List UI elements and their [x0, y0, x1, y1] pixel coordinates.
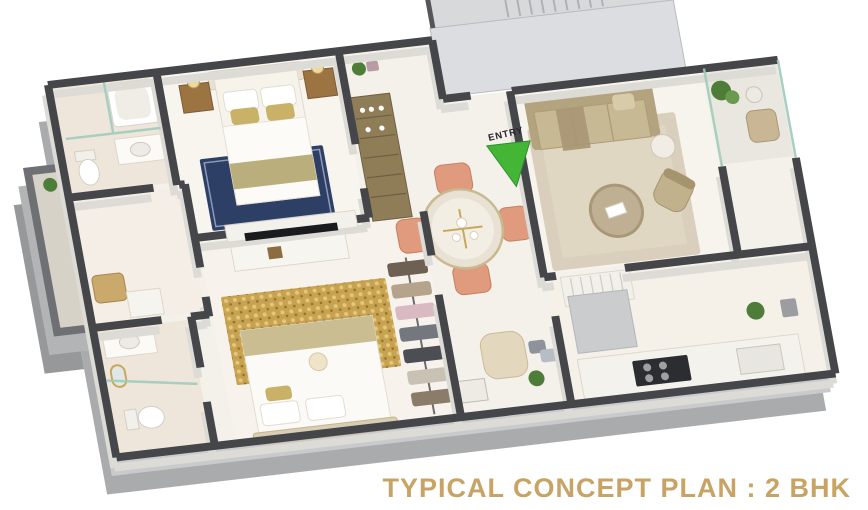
sofa-pillow	[611, 93, 636, 111]
console-decor	[267, 246, 283, 259]
armchair	[478, 330, 530, 380]
floor-plan-render: ENTRY TYPICAL CONCEPT PLAN : 2 BHK	[0, 0, 868, 510]
outdoor-chair	[745, 108, 780, 143]
sink	[736, 344, 784, 375]
accent-pillow	[230, 107, 260, 126]
nook-chair	[91, 272, 128, 303]
accent-pillow	[265, 385, 293, 402]
island-unit	[568, 290, 638, 354]
plan-caption: TYPICAL CONCEPT PLAN : 2 BHK	[382, 473, 851, 503]
dressing-table	[126, 288, 164, 317]
coat-stand	[366, 61, 380, 72]
bathtub-basin	[113, 85, 152, 120]
accent-pillow	[265, 102, 295, 121]
pillow	[305, 395, 346, 421]
appliance	[780, 298, 799, 317]
floor-plan-stage: ENTRY TYPICAL CONCEPT PLAN : 2 BHK	[0, 0, 868, 510]
pillow	[260, 400, 301, 426]
